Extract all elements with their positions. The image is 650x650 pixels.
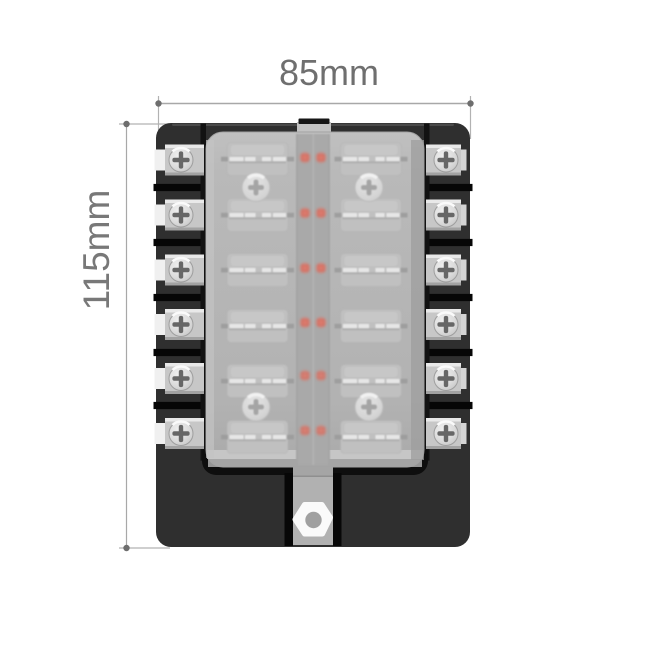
svg-text:85mm: 85mm [279,52,379,93]
svg-text:115mm: 115mm [76,190,117,311]
